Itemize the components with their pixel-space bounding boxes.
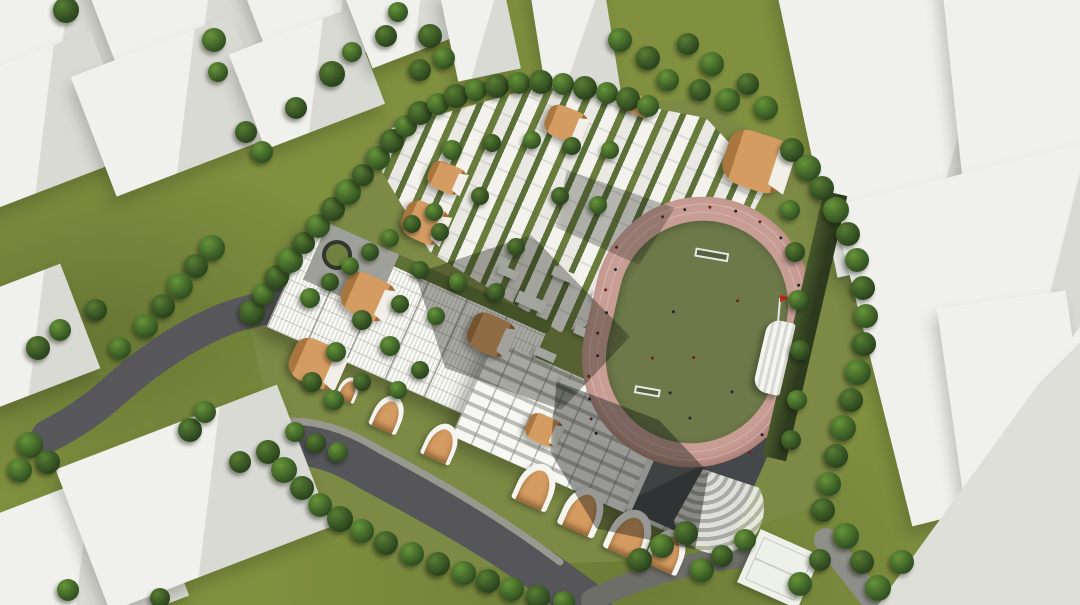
cars-layer [0,0,1080,605]
campus-aerial-rendering [0,0,1080,605]
